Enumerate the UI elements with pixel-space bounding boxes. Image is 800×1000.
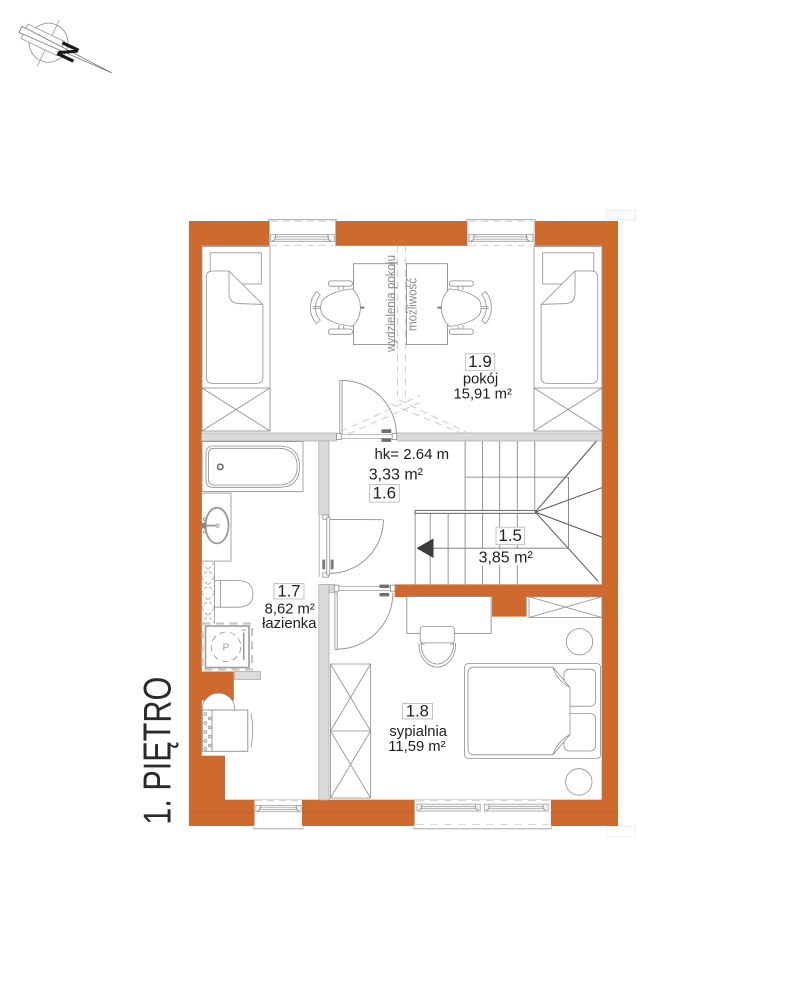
svg-text:11,59 m²: 11,59 m² <box>388 739 445 755</box>
svg-text:15,91 m²: 15,91 m² <box>453 387 511 403</box>
svg-text:1.8: 1.8 <box>406 702 429 720</box>
svg-text:1.9: 1.9 <box>468 352 492 371</box>
svg-text:1. PIĘTRO: 1. PIĘTRO <box>137 677 180 825</box>
svg-text:1.6: 1.6 <box>372 484 396 503</box>
svg-text:wydzielenia pokoju: wydzielenia pokoju <box>384 255 398 353</box>
svg-text:możliwość: możliwość <box>406 278 420 331</box>
svg-text:hk= 2.64 m: hk= 2.64 m <box>374 446 449 463</box>
svg-text:P: P <box>222 641 229 653</box>
svg-text:1.7: 1.7 <box>278 582 301 600</box>
svg-text:3,85 m²: 3,85 m² <box>479 550 534 567</box>
svg-text:pokój: pokój <box>463 372 498 388</box>
svg-text:sypialnia: sypialnia <box>389 724 447 740</box>
svg-text:1.5: 1.5 <box>498 526 522 545</box>
svg-text:3,33 m²: 3,33 m² <box>369 467 424 484</box>
svg-text:łazienka: łazienka <box>262 616 317 632</box>
